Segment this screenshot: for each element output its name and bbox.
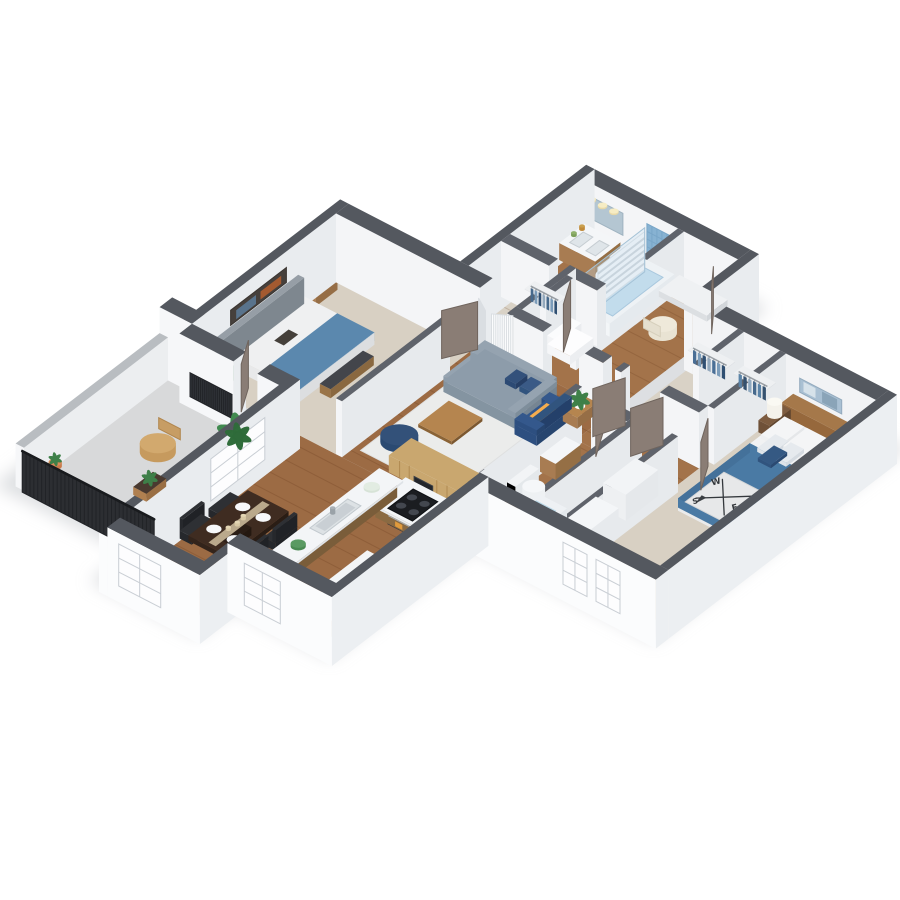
vanity-bottle-1 xyxy=(579,224,585,231)
candle-2 xyxy=(235,521,240,527)
counter-herb-plant xyxy=(291,539,306,550)
burner-4 xyxy=(408,509,418,515)
balcony-wicker-chair xyxy=(140,433,176,462)
burner-3 xyxy=(396,503,406,509)
plate-1 xyxy=(235,503,250,512)
burner-1 xyxy=(407,494,417,500)
door-bedroom1 xyxy=(442,302,478,359)
counter-bowl xyxy=(364,482,380,493)
candle-3 xyxy=(226,526,231,532)
burner-2 xyxy=(419,501,429,507)
vanity-light-3 xyxy=(609,208,619,215)
plate-3 xyxy=(256,513,271,522)
plate-2 xyxy=(206,525,221,534)
vanity-light-2 xyxy=(598,202,608,209)
vanity-bottle-2 xyxy=(571,231,577,237)
bed2-lamp-1 xyxy=(767,397,782,418)
door-walkin-2 xyxy=(631,397,663,456)
door-walkin-1 xyxy=(593,378,625,437)
floorplan-3d-render: WSE xyxy=(0,0,900,900)
floorplan-scene-svg: WSE xyxy=(0,0,900,900)
candle-1 xyxy=(241,514,246,521)
kitchen-faucet xyxy=(330,506,335,514)
